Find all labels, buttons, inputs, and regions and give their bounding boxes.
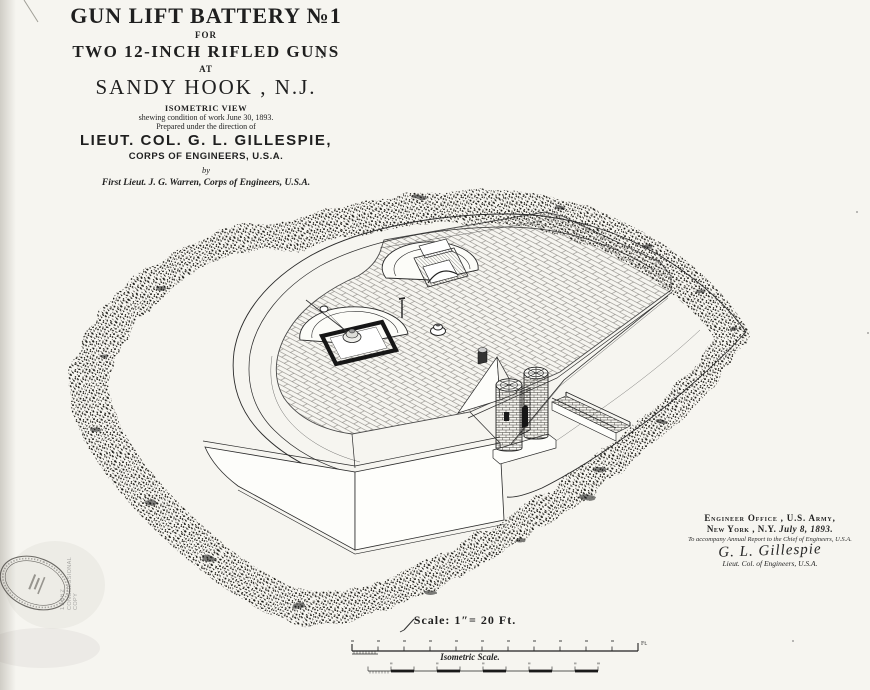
accession-number: 13862 — [60, 540, 67, 610]
place-date-line: New York , N.Y. July 8, 1893. — [640, 524, 870, 534]
director-org: CORPS OF ENGINEERS, U.S.A. — [38, 151, 374, 162]
condition-note: shewing condition of work June 30, 1893. — [38, 113, 374, 122]
signature-block: Engineer Office , U.S. Army, New York , … — [640, 513, 870, 568]
battery-structure — [203, 212, 672, 554]
drawing-subtitle: TWO 12-INCH RIFLED GUNS — [38, 42, 374, 62]
accession-note: CONGRESSIONAL COPY — [67, 540, 79, 610]
drawing-title: GUN LIFT BATTERY №1 — [38, 4, 374, 27]
date-text: July 8, 1893. — [779, 524, 833, 534]
tick-number-smudges — [351, 640, 614, 642]
feet-unit-label: Ft. — [641, 641, 648, 647]
direction-note: Prepared under the direction of — [38, 122, 374, 131]
author-name: First Lieut. J. G. Warren, Corps of Engi… — [38, 178, 374, 188]
gate-doorway — [522, 405, 528, 428]
drawing-sheet: GUN LIFT BATTERY №1 FOR TWO 12-INCH RIFL… — [0, 0, 870, 690]
tick-number-smudges — [390, 663, 600, 665]
scale-label: Scale: 1″= 20 Ft. — [330, 613, 600, 628]
isometric-scale-bar — [368, 663, 600, 674]
accession-stamp: 13862 CONGRESSIONAL COPY — [60, 540, 74, 610]
isometric-scale-label: Isometric Scale. — [380, 652, 560, 662]
office-line: Engineer Office , U.S. Army, — [640, 513, 870, 523]
at-label: AT — [38, 64, 374, 74]
place-text: New York , N.Y. — [707, 524, 777, 534]
by-label: by — [38, 165, 374, 175]
for-label: FOR — [38, 30, 374, 40]
bridge-ramp — [552, 392, 630, 441]
location: SANDY HOOK , N.J. — [38, 75, 374, 100]
title-block: GUN LIFT BATTERY №1 FOR TWO 12-INCH RIFL… — [38, 4, 374, 188]
director-name: LIEUT. COL. G. L. GILLESPIE, — [38, 132, 374, 149]
view-type: ISOMETRIC VIEW — [38, 103, 374, 113]
